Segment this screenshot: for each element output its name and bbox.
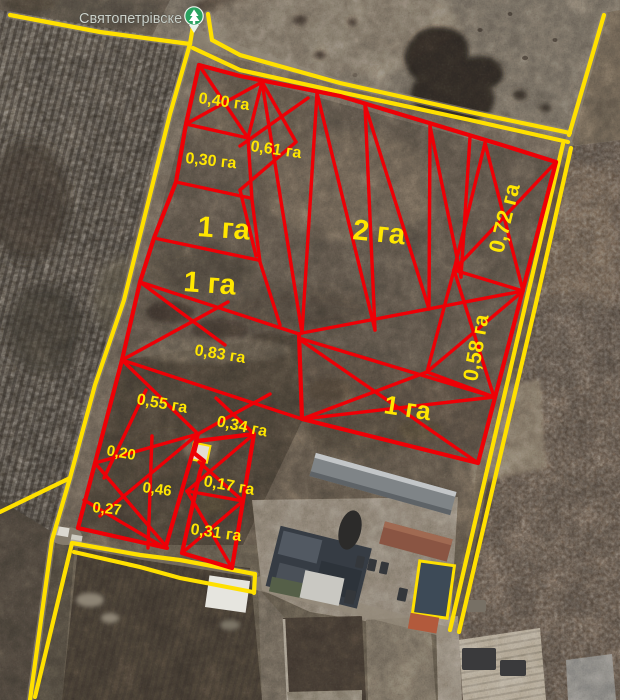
svg-text:2 га: 2 га <box>351 214 407 251</box>
svg-text:Святопетрівске: Святопетрівске <box>79 11 182 27</box>
svg-text:1 га: 1 га <box>197 211 252 247</box>
svg-text:0,27: 0,27 <box>92 499 123 519</box>
svg-text:1 га: 1 га <box>183 266 238 302</box>
